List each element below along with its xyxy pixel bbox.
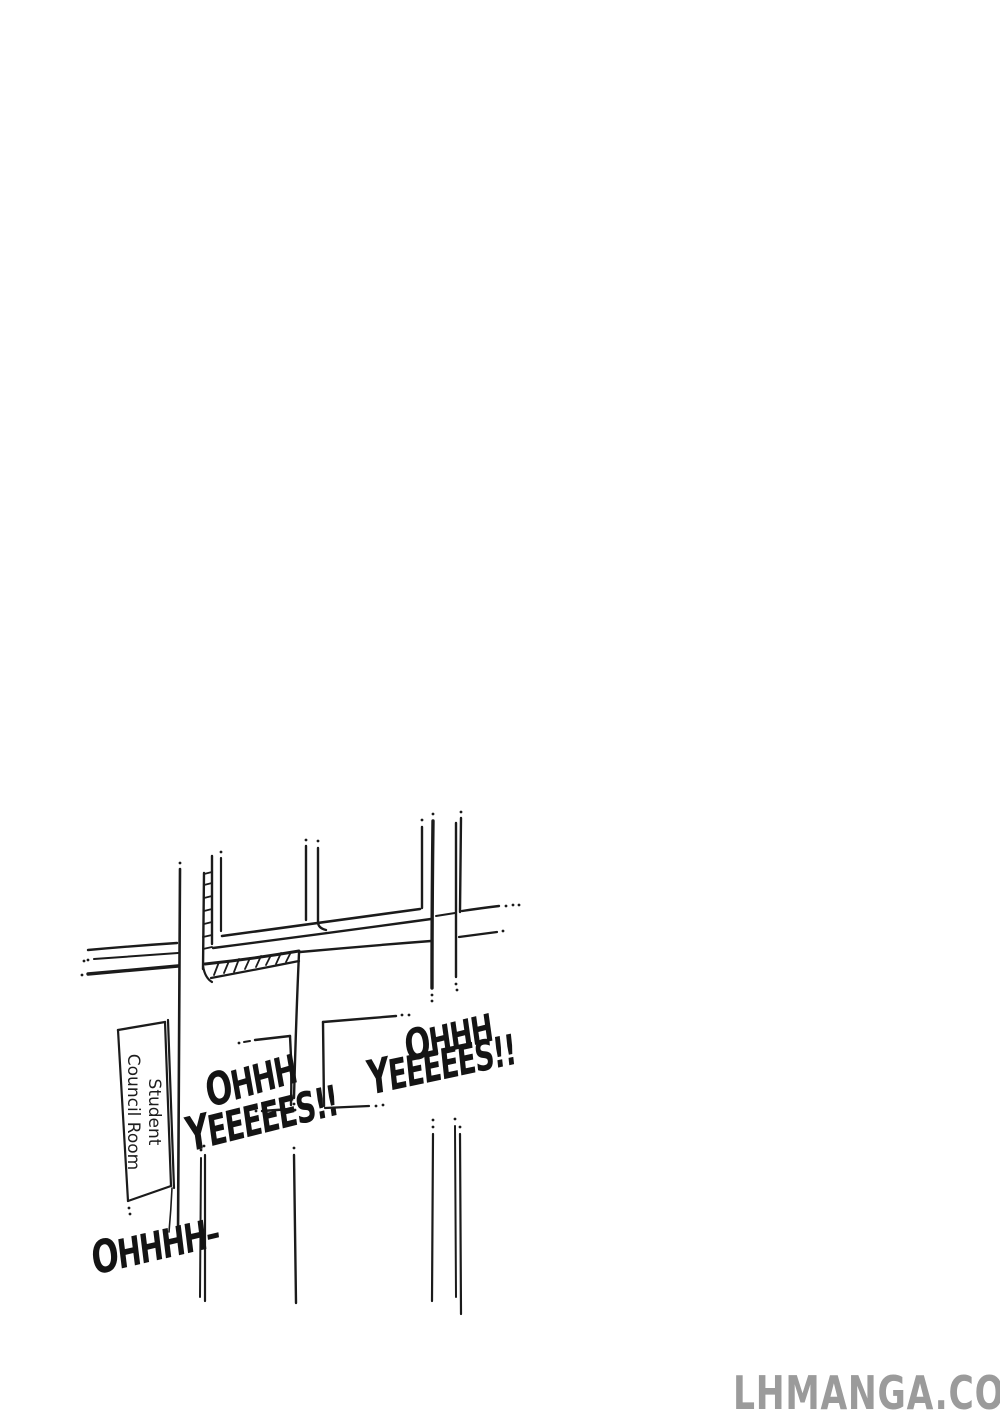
- stud-line: [455, 1126, 456, 1297]
- pillar-left-edge: [203, 873, 204, 969]
- hatched-ceiling-strip: [205, 951, 299, 978]
- rail-top-line: [88, 943, 177, 950]
- rail-top-line: [222, 909, 420, 936]
- rail-mid-line: [94, 953, 178, 959]
- hallway-line-art-sketch: [0, 0, 1000, 1422]
- post-lower: [294, 1155, 296, 1303]
- strip-bottom-edge: [211, 961, 299, 978]
- wall-rail-left: [88, 943, 178, 974]
- post-line: [178, 869, 180, 1237]
- stud-line: [460, 818, 461, 912]
- sign-line-1: Student: [143, 1037, 164, 1187]
- wall-rail-right: [459, 906, 499, 937]
- sign-bottom-edge: [128, 1186, 171, 1201]
- stud-line: [318, 848, 326, 930]
- lower-wall-verticals: [200, 1126, 461, 1314]
- rail-lower-line: [459, 932, 497, 937]
- stud-line: [460, 1134, 461, 1314]
- sign-top-edge: [118, 1022, 165, 1030]
- pillar-foot: [203, 966, 212, 982]
- student-council-room-sign: Student Council Room: [122, 1037, 164, 1187]
- frame-top-dash: [244, 1041, 250, 1042]
- strip-hatch-ticks: [214, 952, 291, 975]
- site-watermark: LHMANGA.COM: [733, 1366, 1000, 1420]
- rail-top-line: [462, 906, 499, 911]
- frame-top: [323, 1016, 396, 1022]
- rail-lower-line: [300, 941, 431, 952]
- stud-line-thick: [432, 821, 433, 988]
- rail-bottom-line: [88, 966, 178, 974]
- stud-line: [432, 1134, 433, 1301]
- left-wall-post: [178, 869, 180, 1237]
- frame-top: [255, 1036, 290, 1040]
- sign-line-2: Council Room: [122, 1037, 143, 1187]
- wall-rail-middle: [213, 909, 455, 952]
- rail-stub: [436, 913, 455, 916]
- upper-wall-verticals: [306, 818, 461, 988]
- manga-page: Student Council Room OHHH YEEEEES!! OHHH…: [0, 0, 1000, 1422]
